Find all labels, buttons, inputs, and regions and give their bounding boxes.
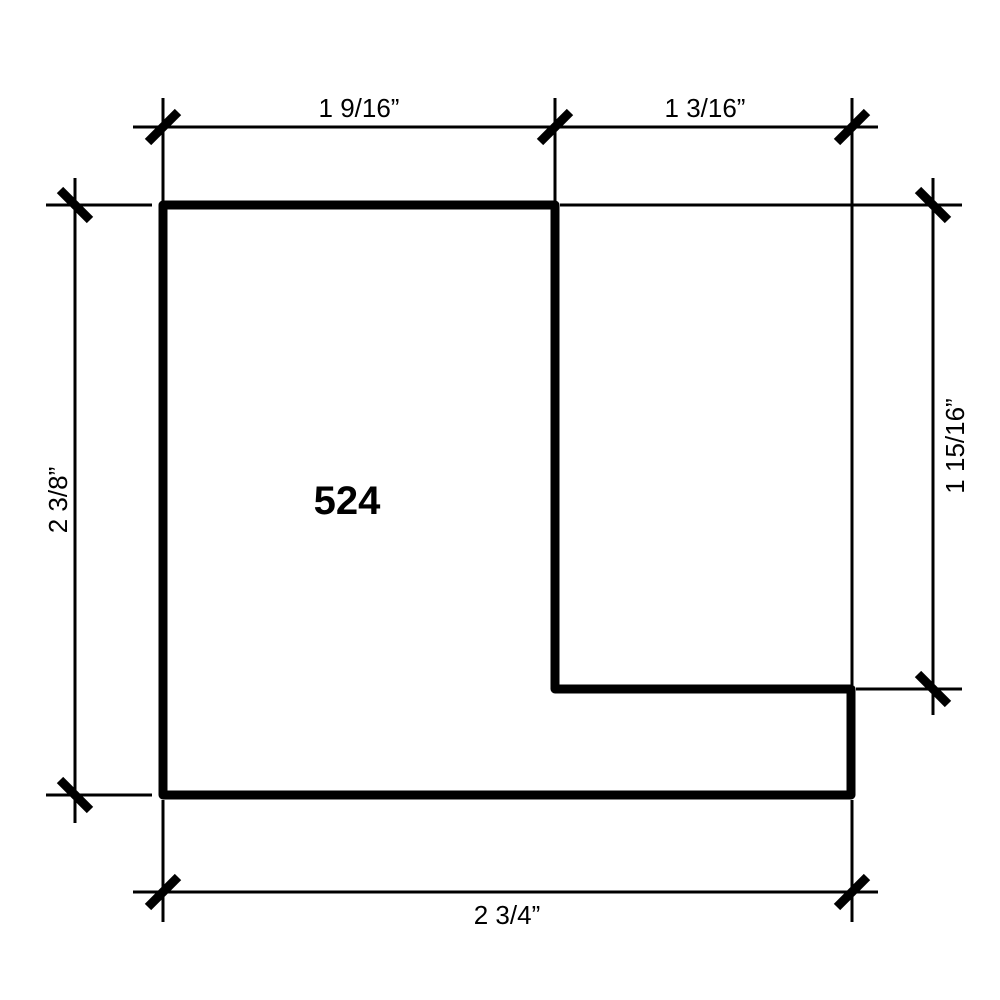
dimension-label-right: 1 15/16” <box>940 398 970 493</box>
tick-marks <box>60 112 948 907</box>
profile-technical-drawing: 1 9/16” 1 3/16” 2 3/4” 2 3/8” 1 15/16” 5… <box>0 0 1000 1000</box>
dimension-label-bottom: 2 3/4” <box>474 900 541 930</box>
dimension-label-top-left: 1 9/16” <box>319 93 400 123</box>
dimension-label-left: 2 3/8” <box>43 467 73 534</box>
dimension-label-top-right: 1 3/16” <box>665 93 746 123</box>
drawing-canvas: 1 9/16” 1 3/16” 2 3/4” 2 3/8” 1 15/16” 5… <box>0 0 1000 1000</box>
dimension-lines <box>75 127 933 892</box>
profile-outline <box>163 205 851 795</box>
profile-number-label: 524 <box>314 479 381 523</box>
